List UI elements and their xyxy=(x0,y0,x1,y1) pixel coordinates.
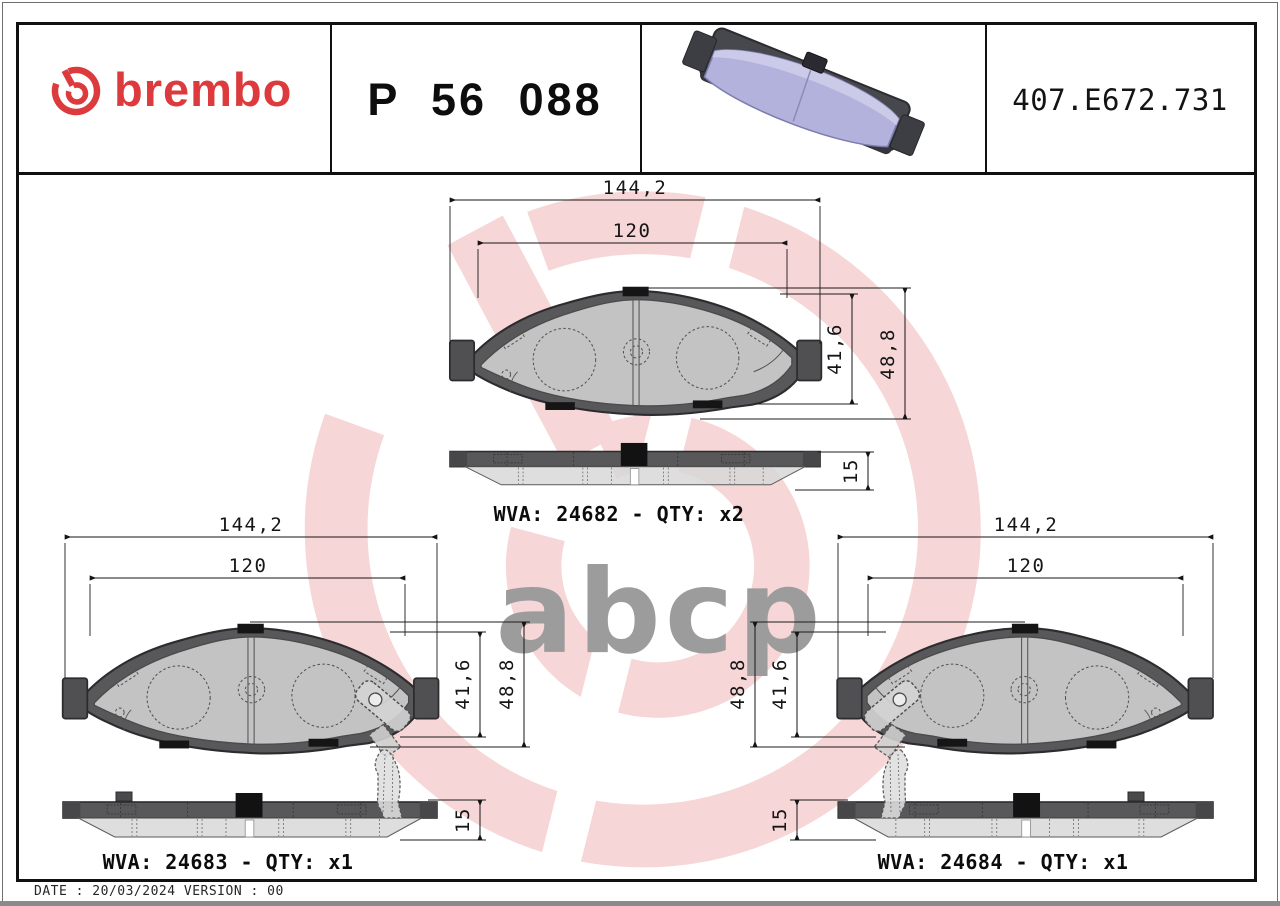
dim-inner-height: 41,6 xyxy=(824,323,846,375)
dim-overall-height: 48,8 xyxy=(727,658,749,710)
brembo-logo-icon xyxy=(50,62,102,118)
brembo-datasheet-page: abcp 144,2 120 41,6 48,8 15 xyxy=(0,0,1280,906)
title-block-bottom-rule xyxy=(19,172,1254,175)
title-block-divider xyxy=(640,25,642,172)
dim-overall-width: 144,2 xyxy=(994,514,1059,536)
wva-label: WVA: 24682 - QTY: x2 xyxy=(494,502,745,526)
dim-overall-height: 48,8 xyxy=(496,658,518,710)
date-version-line: DATE : 20/03/2024 VERSION : 00 xyxy=(34,884,284,899)
dim-friction-width: 120 xyxy=(1007,555,1046,577)
dim-thickness: 15 xyxy=(769,807,791,833)
side-view-nub xyxy=(1128,792,1144,801)
dim-overall-width: 144,2 xyxy=(219,514,284,536)
bottom-gray-strip xyxy=(0,901,1280,906)
brembo-watermark: abcp xyxy=(336,147,949,906)
brake-pad-3d-render xyxy=(680,12,930,167)
dim-thickness: 15 xyxy=(840,458,862,484)
dim-inner-height: 41,6 xyxy=(452,658,474,710)
dim-friction-width: 120 xyxy=(613,220,652,242)
side-view-nub xyxy=(116,792,132,801)
dim-inner-height: 41,6 xyxy=(769,658,791,710)
dim-thickness: 15 xyxy=(452,807,474,833)
drawing-bottom-left-pad: 144,2 120 41,6 48,8 15 WVA: 24683 - QTY:… xyxy=(63,514,530,874)
wva-label: WVA: 24683 - QTY: x1 xyxy=(103,850,354,874)
part-number: P 56 088 xyxy=(330,74,640,126)
dim-overall-height: 48,8 xyxy=(877,328,899,380)
dim-friction-width: 120 xyxy=(229,555,268,577)
brembo-logo: brembo xyxy=(50,62,292,118)
wva-label: WVA: 24684 - QTY: x1 xyxy=(878,850,1129,874)
dim-overall-width: 144,2 xyxy=(603,177,668,199)
brembo-wordmark: brembo xyxy=(114,62,292,118)
reference-number: 407.E672.731 xyxy=(985,83,1255,117)
pad-side-view xyxy=(450,443,820,485)
